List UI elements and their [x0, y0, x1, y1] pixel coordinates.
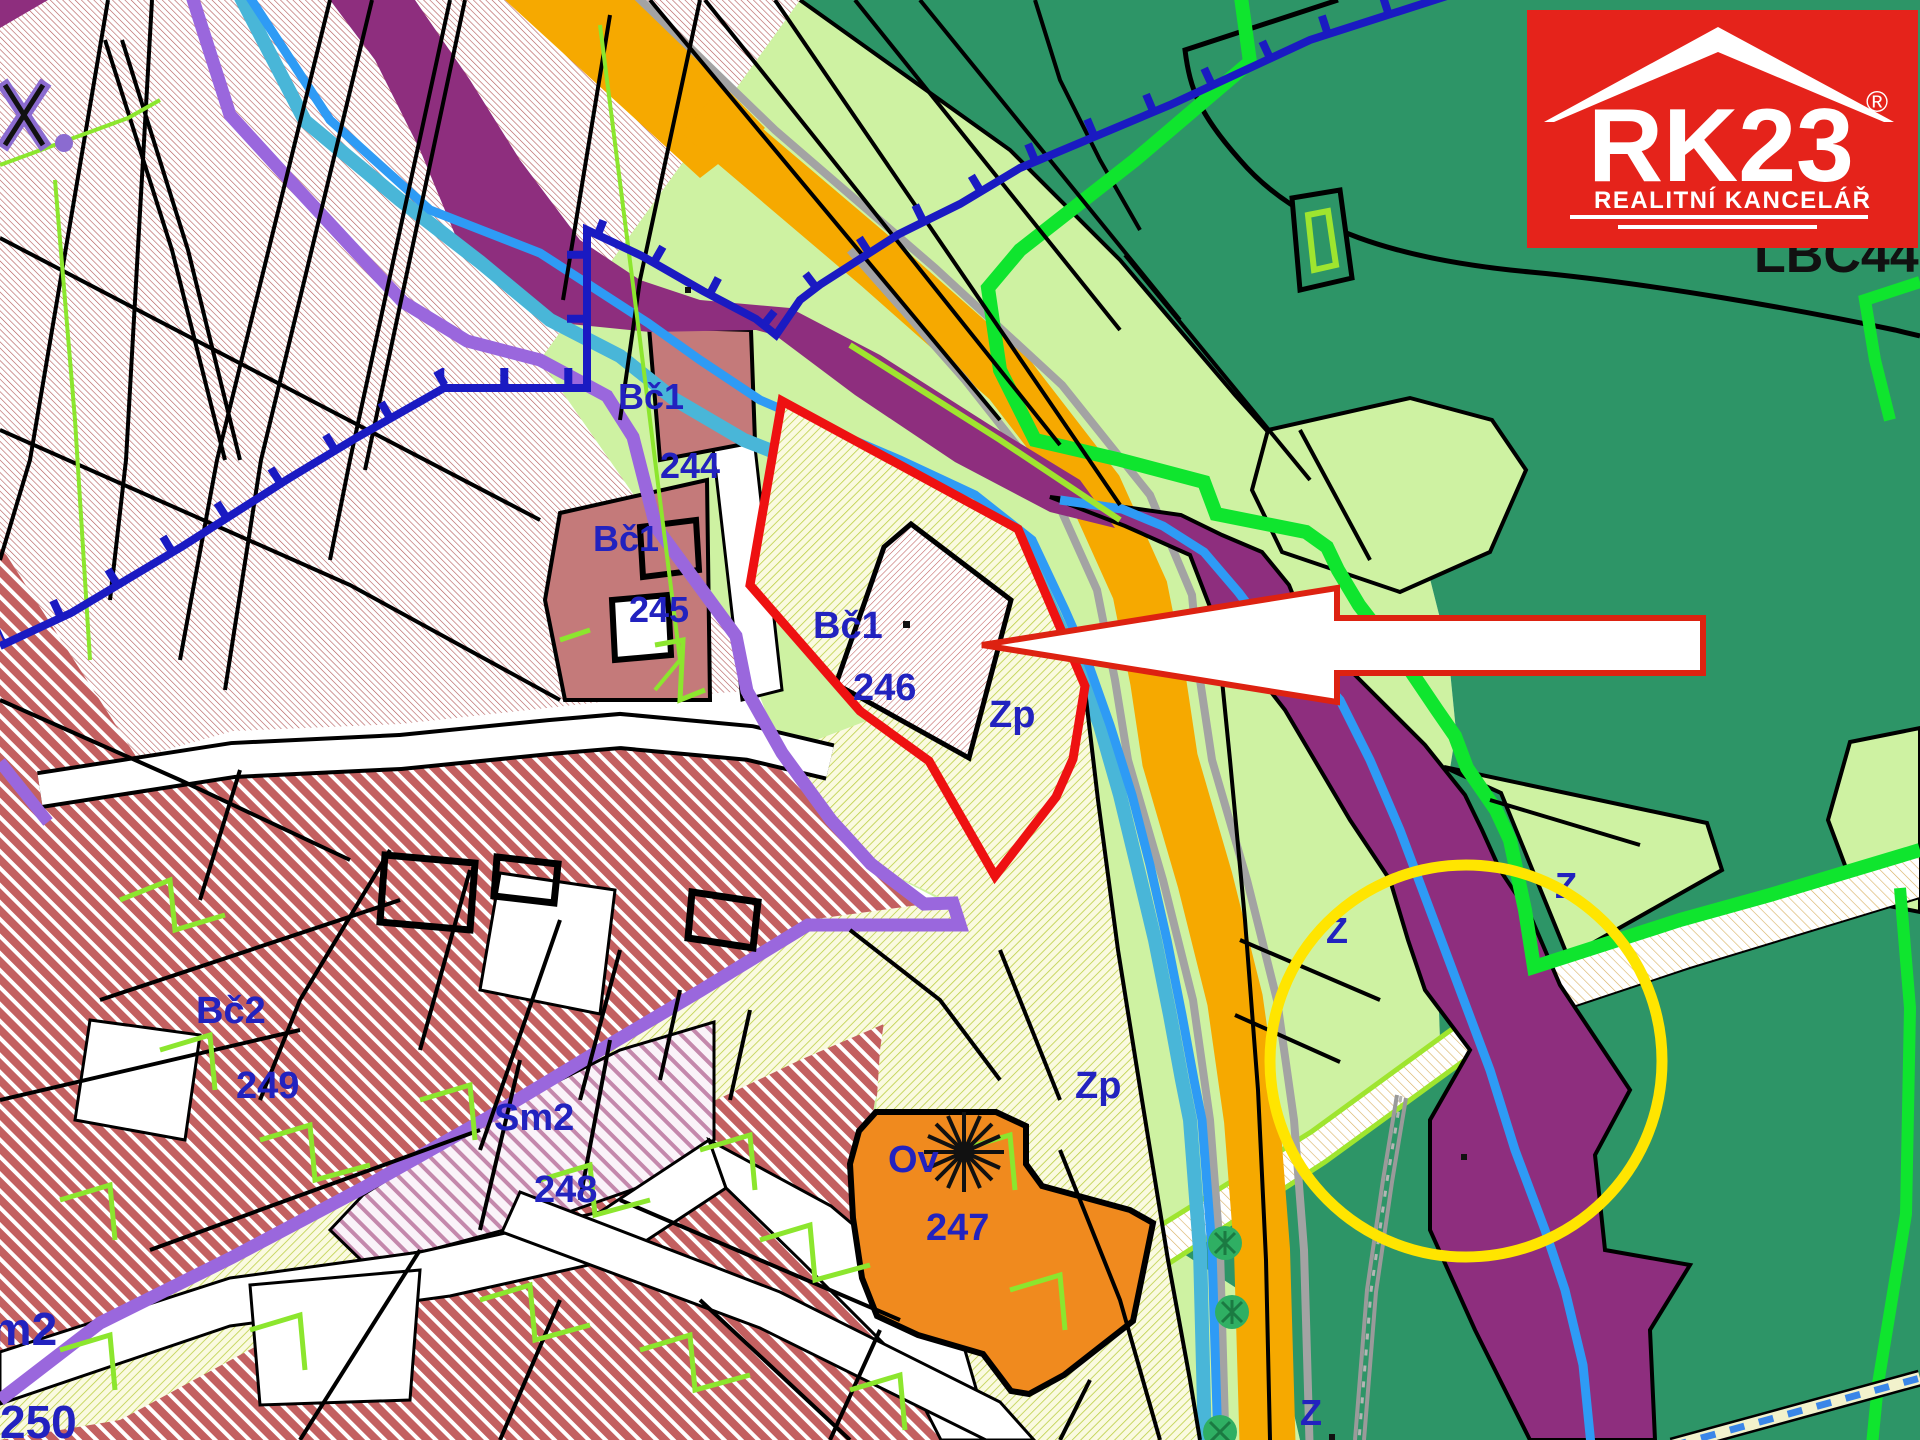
svg-text:REALITNÍ KANCELÁŘ: REALITNÍ KANCELÁŘ: [1594, 186, 1872, 214]
svg-text:Sm2: Sm2: [494, 1097, 574, 1139]
svg-text:Bč2: Bč2: [196, 990, 266, 1032]
svg-text:244: 244: [660, 445, 720, 486]
svg-text:Bč1: Bč1: [618, 376, 684, 417]
svg-text:249: 249: [236, 1065, 299, 1107]
svg-text:248: 248: [534, 1169, 597, 1211]
svg-text:Bč1: Bč1: [813, 605, 883, 647]
svg-text:Sm2: Sm2: [0, 1303, 57, 1355]
svg-text:250: 250: [0, 1396, 77, 1440]
svg-text:Zp: Zp: [989, 694, 1035, 736]
svg-text:246: 246: [853, 667, 916, 709]
svg-text:®: ®: [1866, 86, 1888, 119]
svg-text:Z: Z: [1300, 1392, 1322, 1433]
svg-text:Ov: Ov: [888, 1139, 939, 1181]
svg-text:245: 245: [629, 589, 689, 630]
svg-text:Bč1: Bč1: [593, 518, 659, 559]
svg-text:247: 247: [926, 1207, 989, 1249]
svg-text:Zp: Zp: [1075, 1065, 1121, 1107]
